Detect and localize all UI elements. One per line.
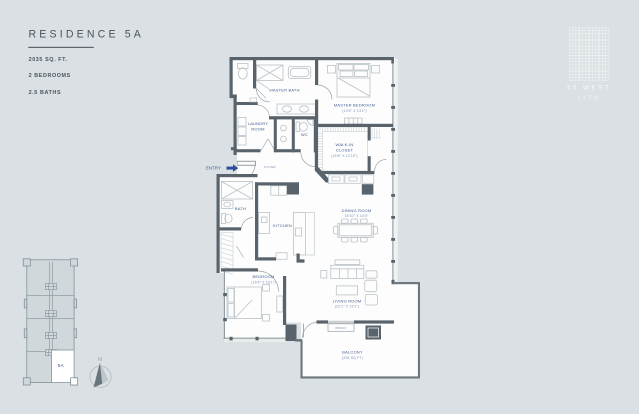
svg-text:BEDROOM: BEDROOM (252, 274, 274, 279)
svg-text:(16'6" X 12'10"): (16'6" X 12'10") (331, 154, 358, 158)
svg-text:(13'8" X 13'1"): (13'8" X 13'1") (342, 109, 366, 113)
svg-text:2035 SQ. FT.: 2035 SQ. FT. (29, 57, 68, 63)
svg-text:ROOM: ROOM (251, 127, 264, 132)
svg-text:MASTER BEDROOM: MASTER BEDROOM (334, 103, 375, 108)
svg-text:RESIDENCE 5A: RESIDENCE 5A (29, 29, 145, 41)
svg-text:CLOSET: CLOSET (336, 148, 354, 153)
svg-text:(16'5" X 16'1"): (16'5" X 16'1") (251, 280, 275, 284)
svg-text:BALCONY: BALCONY (342, 350, 363, 355)
svg-text:40 WEST: 40 WEST (567, 85, 612, 92)
svg-text:LAUNDRY: LAUNDRY (248, 121, 269, 126)
svg-text:2.5 BATHS: 2.5 BATHS (29, 90, 62, 96)
svg-text:LIVING ROOM: LIVING ROOM (333, 298, 362, 303)
svg-text:FOYER: FOYER (264, 165, 276, 169)
svg-text:12TH: 12TH (577, 96, 600, 102)
svg-text:(22'1" X 13'1"): (22'1" X 13'1") (335, 305, 359, 309)
svg-text:16'10" X 16'0": 16'10" X 16'0" (345, 214, 369, 218)
svg-text:WALK-IN: WALK-IN (336, 142, 354, 147)
svg-text:WC: WC (301, 132, 308, 137)
svg-text:BATH: BATH (235, 206, 246, 211)
svg-text:MASTER BATH: MASTER BATH (269, 88, 299, 93)
svg-text:ENTRY: ENTRY (206, 165, 221, 170)
svg-text:2 BEDROOMS: 2 BEDROOMS (29, 73, 71, 79)
svg-text:(208 SQ FT): (208 SQ FT) (342, 356, 363, 360)
svg-text:PRIVACY: PRIVACY (335, 326, 346, 330)
svg-text:KITCHEN: KITCHEN (273, 223, 292, 228)
svg-text:N: N (98, 357, 102, 363)
svg-text:5A: 5A (58, 363, 65, 369)
svg-text:DINING ROOM: DINING ROOM (342, 208, 372, 213)
